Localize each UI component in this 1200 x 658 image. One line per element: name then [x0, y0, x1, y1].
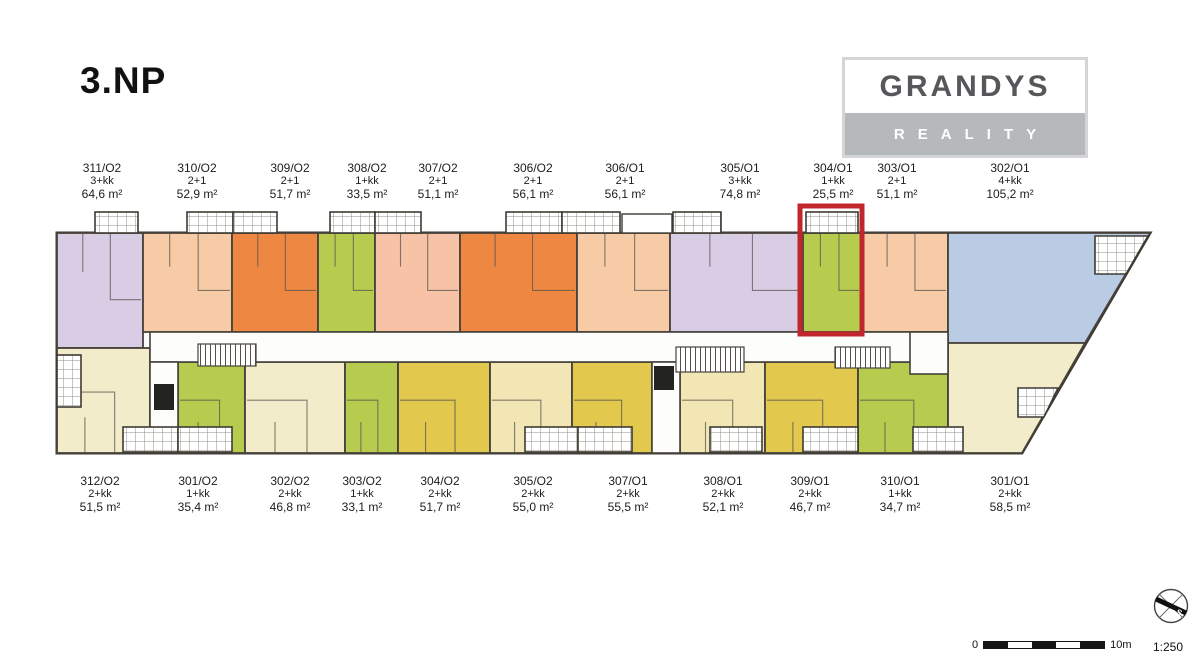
unit-306-O2[interactable] [460, 233, 577, 332]
unit-310-O2[interactable] [143, 233, 232, 332]
unit-305-O1[interactable] [670, 233, 803, 332]
balcony-left-edge [57, 355, 81, 407]
unit-306-O1[interactable] [577, 233, 670, 332]
unit-303-O2[interactable] [345, 362, 398, 453]
scale-bar-segments [983, 641, 1105, 649]
elevator-left [154, 384, 174, 410]
unit-id: 310/O1 [855, 475, 945, 488]
balcony [187, 212, 233, 233]
floor-plan [0, 0, 1200, 658]
unit-id: 305/O2 [488, 475, 578, 488]
lobby-right [910, 332, 948, 374]
unit-area: 34,7 m² [855, 501, 945, 514]
staircase-right [835, 347, 890, 368]
balcony [913, 427, 963, 452]
unit-id: 308/O1 [678, 475, 768, 488]
unit-id: 301/O2 [153, 475, 243, 488]
unit-304-O2[interactable] [398, 362, 490, 453]
unit-area: 105,2 m² [965, 188, 1055, 201]
balcony [803, 427, 858, 452]
unit-area: 55,5 m² [583, 501, 673, 514]
unit-label-306-O2: 306/O22+156,1 m² [488, 162, 578, 201]
unit-id: 302/O1 [965, 162, 1055, 175]
unit-label-301-O1: 301/O12+kk58,5 m² [965, 475, 1055, 514]
balcony [562, 212, 620, 233]
balcony [330, 212, 375, 233]
unit-area: 64,6 m² [57, 188, 147, 201]
unit-label-302-O1: 302/O14+kk105,2 m² [965, 162, 1055, 201]
unit-311-O2[interactable] [57, 233, 143, 348]
unit-id: 306/O1 [580, 162, 670, 175]
unit-label-305-O2: 305/O22+kk55,0 m² [488, 475, 578, 514]
unit-id: 311/O2 [57, 162, 147, 175]
unit-label-303-O1: 303/O12+151,1 m² [852, 162, 942, 201]
unit-label-305-O1: 305/O13+kk74,8 m² [695, 162, 785, 201]
balcony [673, 212, 721, 233]
staircase-middle [676, 347, 744, 372]
unit-label-309-O1: 309/O12+kk46,7 m² [765, 475, 855, 514]
unit-id: 301/O1 [965, 475, 1055, 488]
balcony-corner-top [1095, 236, 1148, 274]
scale-bar: 0 10m [972, 639, 1132, 651]
unit-303-O1[interactable] [861, 233, 948, 332]
unit-area: 56,1 m² [488, 188, 578, 201]
unit-id: 312/O2 [55, 475, 145, 488]
unit-304-O1[interactable] [803, 233, 861, 332]
balcony [178, 427, 232, 452]
unit-label-303-O2: 303/O21+kk33,1 m² [317, 475, 407, 514]
unit-301-O1[interactable] [948, 343, 1085, 453]
balcony [578, 427, 632, 452]
unit-area: 46,7 m² [765, 501, 855, 514]
balcony [525, 427, 578, 452]
balcony [506, 212, 562, 233]
balcony-304-O1 [806, 212, 858, 233]
unit-label-306-O1: 306/O12+156,1 m² [580, 162, 670, 201]
entrance-canopy [622, 214, 672, 233]
unit-label-308-O1: 308/O12+kk52,1 m² [678, 475, 768, 514]
unit-307-O2[interactable] [375, 233, 460, 332]
unit-label-310-O2: 310/O22+152,9 m² [152, 162, 242, 201]
unit-id: 307/O2 [393, 162, 483, 175]
unit-area: 35,4 m² [153, 501, 243, 514]
balcony [375, 212, 421, 233]
unit-id: 304/O2 [395, 475, 485, 488]
unit-308-O2[interactable] [318, 233, 375, 332]
unit-id: 303/O2 [317, 475, 407, 488]
unit-id: 307/O1 [583, 475, 673, 488]
unit-area: 51,1 m² [393, 188, 483, 201]
unit-label-307-O1: 307/O12+kk55,5 m² [583, 475, 673, 514]
unit-label-311-O2: 311/O23+kk64,6 m² [57, 162, 147, 201]
unit-label-310-O1: 310/O11+kk34,7 m² [855, 475, 945, 514]
unit-id: 306/O2 [488, 162, 578, 175]
unit-id: 310/O2 [152, 162, 242, 175]
balcony [710, 427, 762, 452]
balcony [95, 212, 138, 233]
unit-label-312-O2: 312/O22+kk51,5 m² [55, 475, 145, 514]
unit-area: 51,5 m² [55, 501, 145, 514]
unit-area: 52,9 m² [152, 188, 242, 201]
unit-area: 51,1 m² [852, 188, 942, 201]
unit-area: 74,8 m² [695, 188, 785, 201]
unit-id: 305/O1 [695, 162, 785, 175]
unit-area: 55,0 m² [488, 501, 578, 514]
scale-end-label: 10m [1110, 639, 1131, 651]
floor-plan-page: 3.NP GRANDYS REALITY [0, 0, 1200, 658]
scale-ratio: 1:250 [1153, 640, 1183, 654]
unit-area: 51,7 m² [395, 501, 485, 514]
unit-label-304-O2: 304/O22+kk51,7 m² [395, 475, 485, 514]
unit-area: 52,1 m² [678, 501, 768, 514]
unit-area: 56,1 m² [580, 188, 670, 201]
staircase-left [198, 344, 256, 366]
elevator-middle [654, 366, 674, 390]
unit-area: 58,5 m² [965, 501, 1055, 514]
balcony [233, 212, 277, 233]
unit-area: 33,1 m² [317, 501, 407, 514]
unit-label-307-O2: 307/O22+151,1 m² [393, 162, 483, 201]
unit-id: 309/O1 [765, 475, 855, 488]
unit-label-301-O2: 301/O21+kk35,4 m² [153, 475, 243, 514]
compass-icon: S [1150, 586, 1192, 628]
unit-302-O2[interactable] [245, 362, 345, 453]
unit-id: 303/O1 [852, 162, 942, 175]
scale-start-label: 0 [972, 639, 978, 651]
unit-309-O2[interactable] [232, 233, 318, 332]
balcony [123, 427, 178, 452]
